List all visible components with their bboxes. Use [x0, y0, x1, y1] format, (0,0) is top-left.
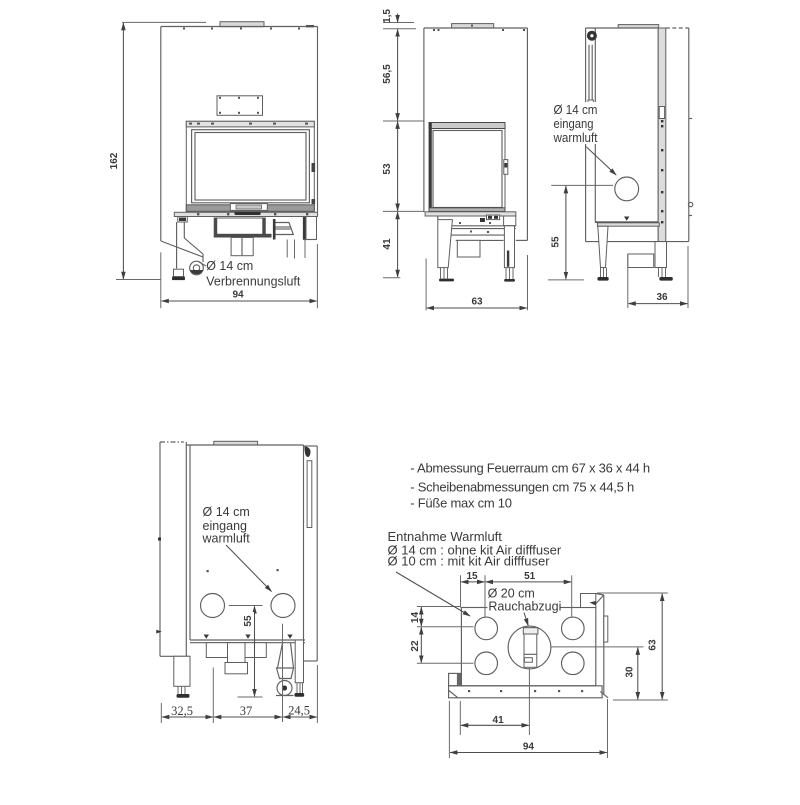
svg-text:41: 41 [382, 238, 393, 250]
svg-text:41: 41 [493, 715, 505, 726]
svg-text:94: 94 [232, 290, 244, 301]
svg-text:55: 55 [551, 236, 562, 248]
svg-text:Ø 14 cm: Ø 14 cm [203, 505, 250, 519]
svg-text:warmluft: warmluft [202, 532, 251, 546]
svg-text:32,5: 32,5 [171, 704, 193, 718]
svg-text:63: 63 [648, 639, 659, 651]
svg-text:- Abmessung Feuerraum cm 67 x: - Abmessung Feuerraum cm 67 x 36 x 44 h [410, 461, 650, 476]
svg-text:Rauchabzugi: Rauchabzugi [488, 600, 561, 614]
svg-text:1,5: 1,5 [382, 9, 393, 23]
svg-text:36: 36 [656, 292, 668, 303]
svg-text:53: 53 [382, 163, 393, 175]
svg-text:56,5: 56,5 [382, 64, 393, 84]
svg-text:24,5: 24,5 [288, 704, 310, 718]
svg-text:55: 55 [243, 615, 254, 627]
svg-text:Ø 20 cm: Ø 20 cm [488, 587, 535, 601]
svg-text:Ø 10 cm : mit kit Air difffuse: Ø 10 cm : mit kit Air difffuser [388, 554, 551, 569]
svg-text:37: 37 [240, 704, 253, 718]
svg-text:Verbrennungsluft: Verbrennungsluft [206, 274, 300, 289]
svg-text:warmluft: warmluft [553, 131, 598, 145]
svg-text:162: 162 [109, 152, 120, 169]
svg-text:14: 14 [410, 612, 421, 624]
svg-text:eingang: eingang [554, 117, 594, 131]
svg-text:Ø 14 cm: Ø 14 cm [206, 258, 253, 273]
svg-text:- Scheibenabmessungen cm 75 x: - Scheibenabmessungen cm 75 x 44,5 h [410, 480, 634, 495]
svg-text:63: 63 [471, 297, 483, 308]
svg-text:30: 30 [625, 666, 636, 678]
svg-text:94: 94 [523, 741, 535, 752]
svg-text:- Füße max cm 10: - Füße max cm 10 [410, 496, 511, 511]
svg-text:51: 51 [524, 571, 536, 582]
svg-text:Ø 14 cm: Ø 14 cm [554, 103, 598, 117]
svg-text:22: 22 [410, 640, 421, 652]
svg-text:15: 15 [466, 571, 478, 582]
